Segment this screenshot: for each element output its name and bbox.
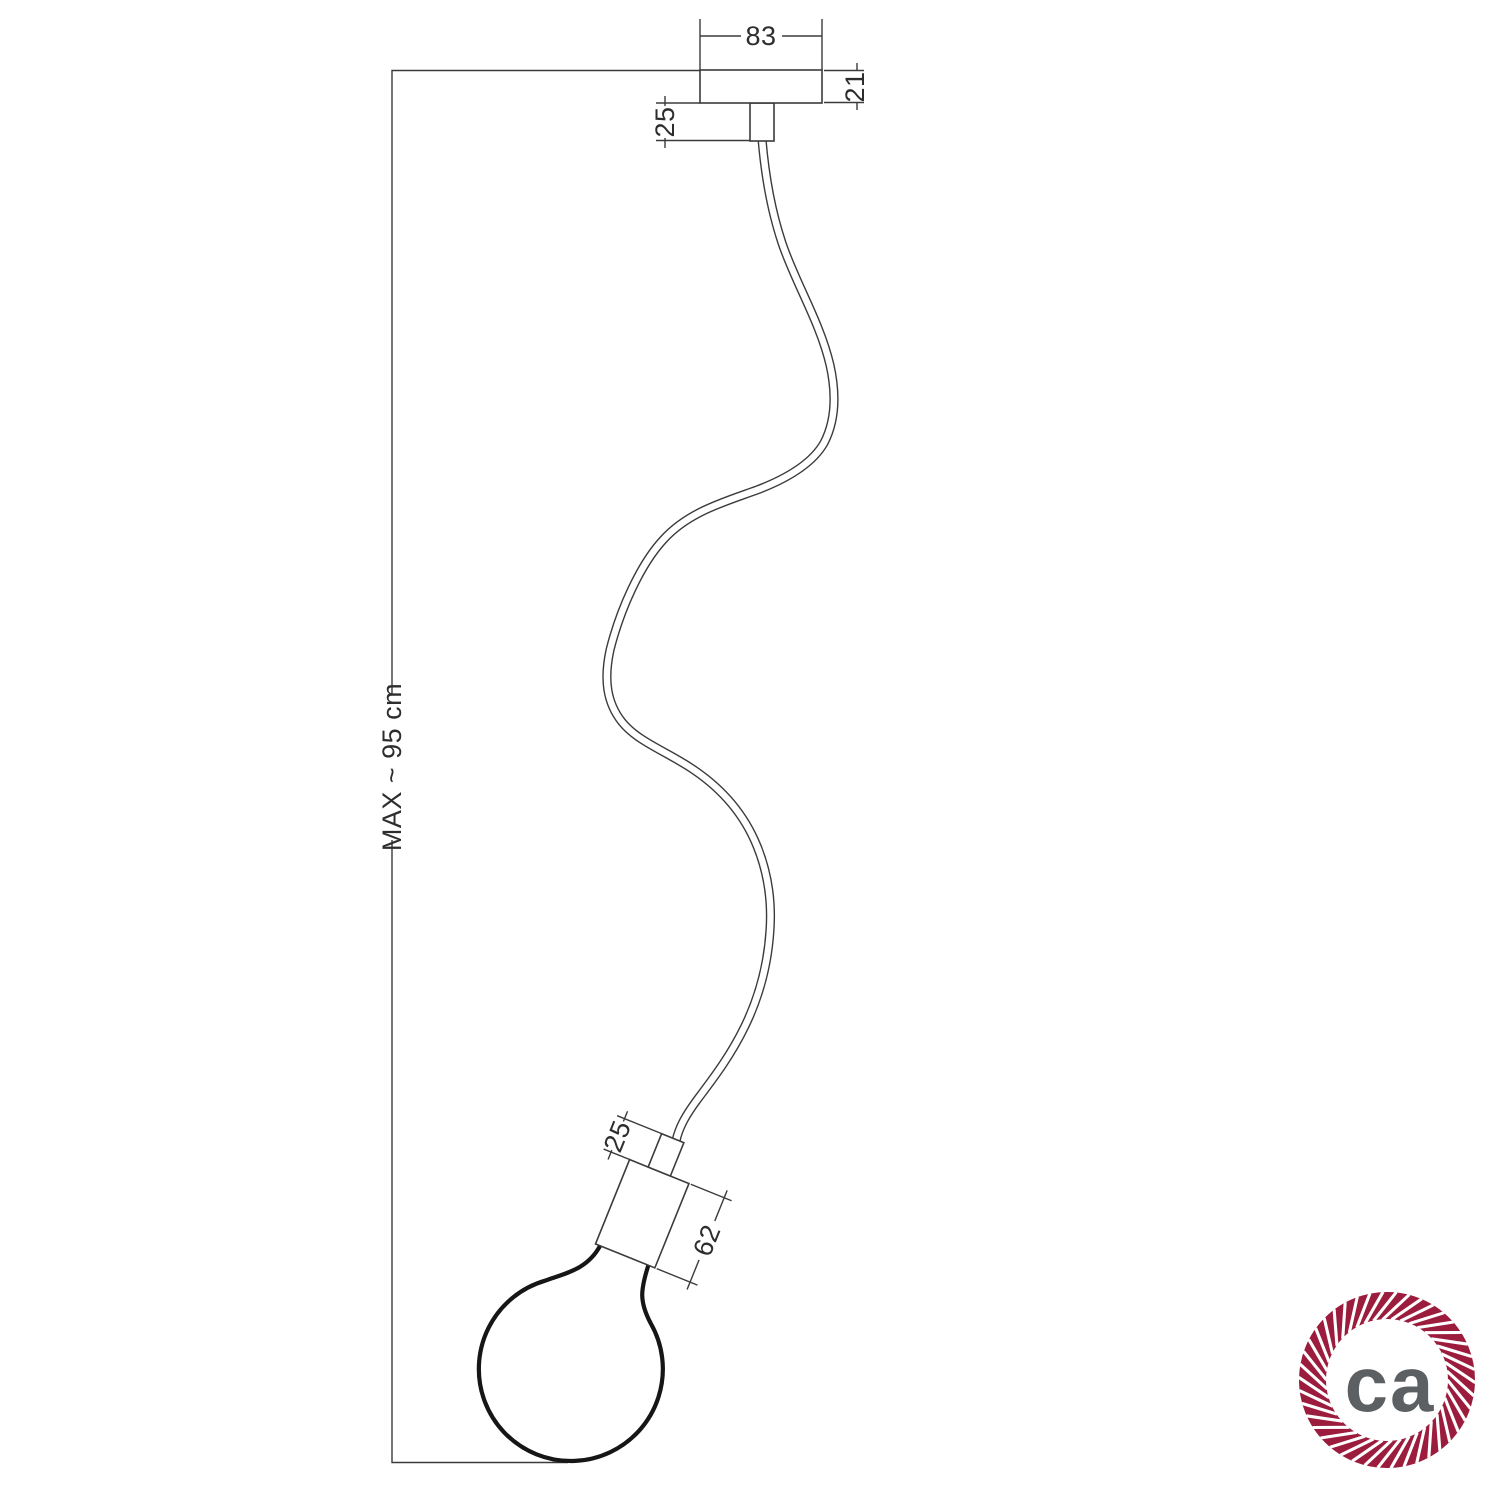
ceiling-canopy (700, 70, 822, 103)
lamp-holder-body (596, 1160, 689, 1268)
cable-gland (648, 1134, 684, 1176)
canopy-stem (750, 103, 774, 141)
brand-logo: ca (1299, 1292, 1476, 1468)
cable-core (607, 139, 834, 1141)
technical-drawing: 83 21 25 MAX ~ 95 cm 25 62 ca (0, 0, 1500, 1500)
label-max-length: MAX ~ 95 cm (377, 683, 407, 851)
logo-monogram: ca (1345, 1340, 1436, 1428)
label-canopy-width: 83 (745, 21, 776, 51)
label-top-strain-relief: 25 (650, 106, 680, 137)
extension-line (657, 1269, 698, 1285)
flex-cable (607, 139, 834, 1141)
holder-assembly (451, 1093, 754, 1488)
dimension-labels: 83 21 25 MAX ~ 95 cm 25 62 (377, 21, 870, 1260)
max-dimension-line-top (392, 71, 700, 695)
bulb-globe (451, 1218, 703, 1488)
label-holder-strain-relief: 25 (598, 1116, 637, 1156)
label-canopy-height: 21 (840, 71, 870, 102)
drawing-canvas: 83 21 25 MAX ~ 95 cm 25 62 ca (0, 0, 1500, 1500)
linework (392, 19, 864, 1489)
extension-line (691, 1184, 732, 1200)
label-holder-length: 62 (687, 1220, 726, 1260)
